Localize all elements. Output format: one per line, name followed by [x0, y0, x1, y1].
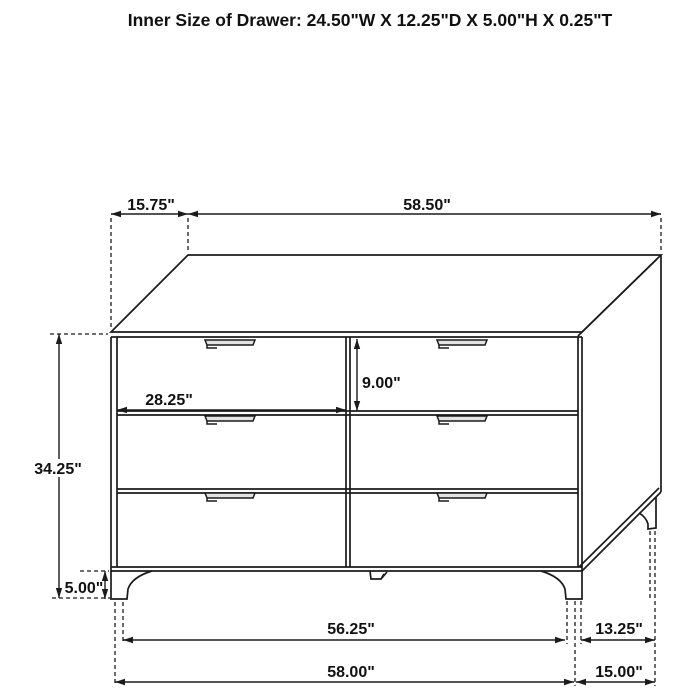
label-base-width-outer: 58.00" — [327, 664, 375, 681]
label-base-depth-top: 13.25" — [595, 621, 643, 638]
label-top-depth-offset: 15.75" — [127, 197, 175, 214]
front-right-leg — [541, 571, 582, 599]
label-leg-height: 5.00" — [65, 580, 104, 597]
drawer-handle — [205, 340, 255, 348]
dimension-labels: 15.75" 58.50" 34.25" 28.25" 9.00" 5.00" … — [30, 197, 643, 681]
side-bottom-slant-outer — [582, 492, 661, 571]
top-face-right-inner-edge — [578, 259, 657, 336]
label-base-depth-bottom: 15.00" — [595, 664, 643, 681]
center-divider — [346, 337, 350, 567]
side-bottom-slant-inner — [579, 488, 659, 567]
drawer-handle — [205, 493, 255, 501]
label-top-width: 58.50" — [403, 197, 451, 214]
drawer-handle — [437, 416, 487, 424]
extension-lines — [50, 218, 661, 686]
dimension-lines — [56, 211, 661, 685]
drawer-handle — [437, 340, 487, 348]
drawer-handle — [205, 416, 255, 424]
top-face — [111, 255, 661, 332]
page-title: Inner Size of Drawer: 24.50"W X 12.25"D … — [128, 10, 613, 30]
legs — [111, 497, 656, 599]
drawer-handle — [437, 493, 487, 501]
dresser-outline — [111, 255, 661, 571]
drawer-divider-1 — [117, 411, 578, 415]
diagram-canvas: Inner Size of Drawer: 24.50"W X 12.25"D … — [0, 0, 700, 700]
label-drawer-front-height: 9.00" — [362, 375, 401, 392]
label-overall-height: 34.25" — [34, 461, 82, 478]
front-left-leg — [111, 571, 152, 599]
drawer-divider-2 — [117, 489, 578, 493]
label-drawer-front-width: 28.25" — [145, 392, 193, 409]
back-right-leg — [639, 497, 656, 529]
label-base-width-inner: 56.25" — [327, 621, 375, 638]
dresser-dimension-diagram: Inner Size of Drawer: 24.50"W X 12.25"D … — [0, 0, 700, 700]
center-foot — [370, 571, 387, 579]
